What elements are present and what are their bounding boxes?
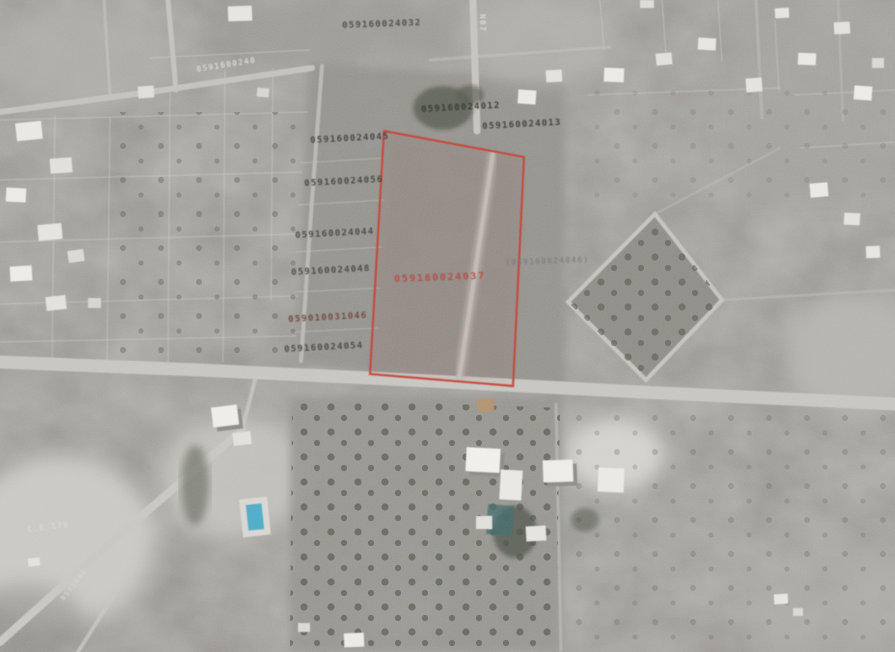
noise-overlay [0,0,895,652]
aerial-photo [0,0,895,652]
aerial-photo-map[interactable]: 0591600240320591600240059160024045059160… [0,0,895,652]
